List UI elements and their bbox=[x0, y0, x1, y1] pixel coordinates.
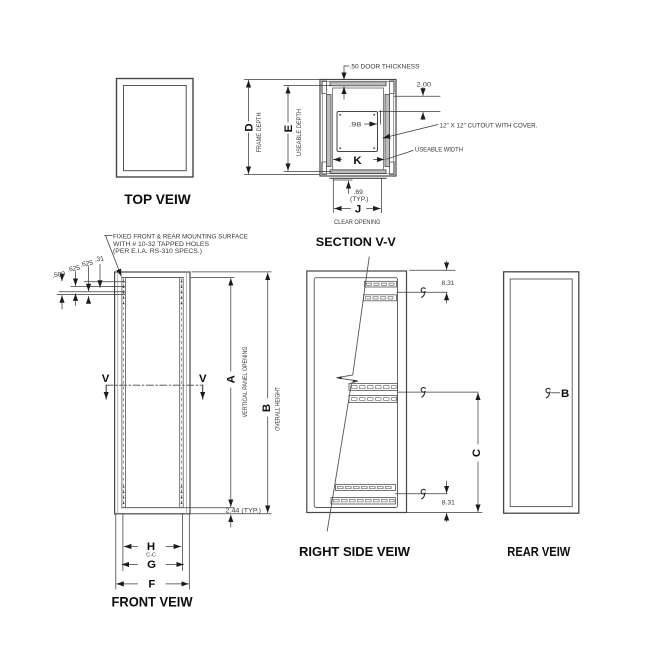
svg-text:A: A bbox=[226, 375, 238, 383]
svg-text:H: H bbox=[147, 541, 155, 553]
svg-text:.69: .69 bbox=[354, 189, 364, 196]
svg-text:2.44 (TYP.): 2.44 (TYP.) bbox=[226, 507, 262, 514]
svg-text:8.31: 8.31 bbox=[442, 280, 455, 287]
svg-text:.50 DOOR THICKNESS: .50 DOOR THICKNESS bbox=[350, 63, 421, 70]
svg-text:TOP VEIW: TOP VEIW bbox=[124, 191, 191, 207]
svg-text:REAR VEIW: REAR VEIW bbox=[507, 545, 570, 559]
svg-text:CLEAR OPENING: CLEAR OPENING bbox=[334, 219, 381, 226]
svg-text:(PER E.I.A. RS-310 SPECS.): (PER E.I.A. RS-310 SPECS.) bbox=[113, 248, 202, 255]
svg-text:V: V bbox=[199, 373, 207, 385]
svg-text:12″ X 12″ CUTOUT WITH COVER.: 12″ X 12″ CUTOUT WITH COVER. bbox=[440, 122, 538, 129]
svg-text:J: J bbox=[355, 204, 361, 216]
svg-text:USEABLE WIDTH: USEABLE WIDTH bbox=[415, 147, 463, 154]
svg-text:D: D bbox=[244, 123, 256, 131]
svg-text:FRAME DEPTH: FRAME DEPTH bbox=[256, 112, 263, 152]
svg-text:C: C bbox=[471, 449, 483, 457]
svg-text:K: K bbox=[353, 155, 362, 167]
svg-text:C-C: C-C bbox=[146, 552, 156, 558]
svg-text:OVERALL HEIGHT: OVERALL HEIGHT bbox=[275, 387, 282, 431]
svg-text:F: F bbox=[148, 578, 155, 590]
svg-text:8.31: 8.31 bbox=[442, 499, 455, 506]
svg-text:FIXED FRONT & REAR MOUNTING SU: FIXED FRONT & REAR MOUNTING SURFACE bbox=[113, 234, 248, 241]
svg-text:RIGHT SIDE VEIW: RIGHT SIDE VEIW bbox=[299, 545, 410, 559]
svg-text:WITH # 10-32 TAPPED HOLES: WITH # 10-32 TAPPED HOLES bbox=[113, 241, 210, 248]
svg-text:2.00: 2.00 bbox=[417, 81, 432, 88]
svg-text:B: B bbox=[261, 404, 273, 412]
svg-text:FRONT VEIW: FRONT VEIW bbox=[112, 594, 194, 610]
svg-text:(TYP.): (TYP.) bbox=[350, 196, 368, 203]
svg-text:B: B bbox=[561, 388, 569, 400]
svg-text:.98: .98 bbox=[349, 122, 362, 129]
svg-text:E: E bbox=[283, 124, 295, 132]
svg-text:V: V bbox=[102, 373, 110, 385]
svg-text:.31: .31 bbox=[94, 255, 105, 263]
svg-text:SECTION V-V: SECTION V-V bbox=[316, 237, 396, 249]
svg-text:G: G bbox=[147, 559, 156, 571]
svg-text:USEABLE DEPTH: USEABLE DEPTH bbox=[296, 109, 303, 156]
svg-text:VERTICAL PANEL OPENING: VERTICAL PANEL OPENING bbox=[242, 346, 249, 417]
